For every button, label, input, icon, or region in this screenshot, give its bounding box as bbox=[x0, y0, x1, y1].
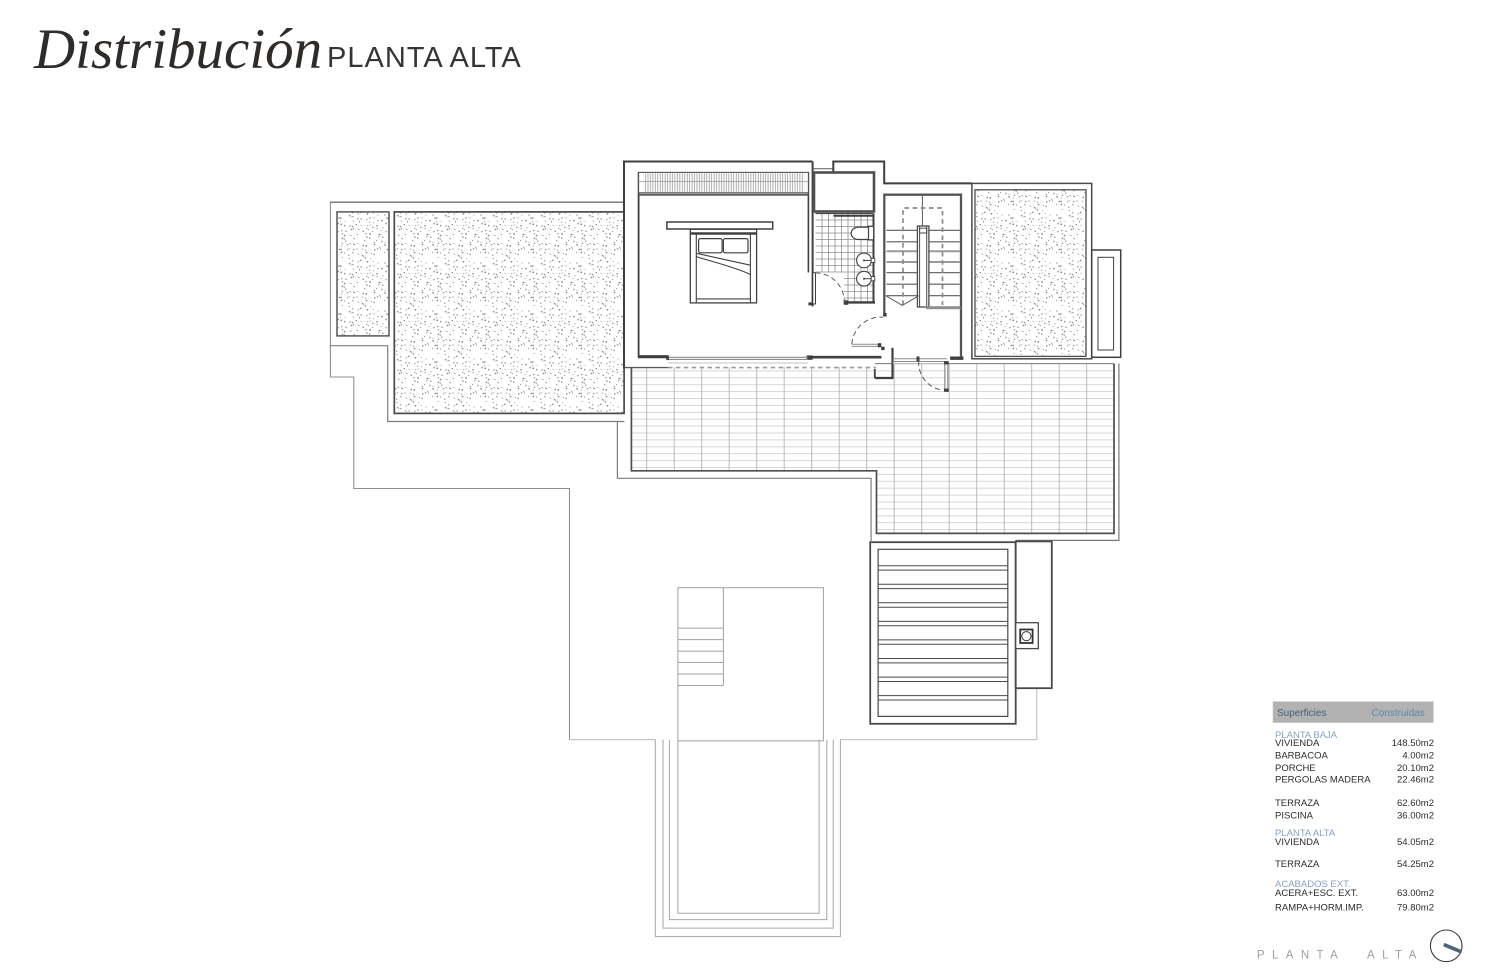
svg-text:TERRAZA: TERRAZA bbox=[1275, 859, 1320, 870]
svg-text:20.10m2: 20.10m2 bbox=[1397, 763, 1434, 774]
svg-text:VIVIENDA: VIVIENDA bbox=[1275, 738, 1320, 749]
svg-text:VIVIENDA: VIVIENDA bbox=[1275, 837, 1320, 848]
svg-text:62.60m2: 62.60m2 bbox=[1397, 798, 1434, 809]
svg-text:ALTA: ALTA bbox=[1367, 950, 1424, 962]
svg-text:79.80m2: 79.80m2 bbox=[1397, 902, 1434, 913]
svg-text:22.46m2: 22.46m2 bbox=[1397, 775, 1434, 786]
svg-text:TERRAZA: TERRAZA bbox=[1275, 798, 1320, 809]
svg-text:54.05m2: 54.05m2 bbox=[1397, 837, 1434, 848]
svg-text:Superficies: Superficies bbox=[1277, 708, 1326, 719]
svg-text:BARBACOA: BARBACOA bbox=[1275, 750, 1328, 761]
svg-text:4.00m2: 4.00m2 bbox=[1402, 750, 1434, 761]
svg-text:PORCHE: PORCHE bbox=[1275, 763, 1316, 774]
svg-text:PISCINA: PISCINA bbox=[1275, 810, 1314, 821]
svg-text:36.00m2: 36.00m2 bbox=[1397, 810, 1434, 821]
svg-text:148.50m2: 148.50m2 bbox=[1392, 738, 1434, 749]
svg-text:PLANTA: PLANTA bbox=[1257, 950, 1345, 962]
svg-text:Construidas: Construidas bbox=[1372, 708, 1425, 719]
svg-text:54.25m2: 54.25m2 bbox=[1397, 859, 1434, 870]
svg-text:ACERA+ESC. EXT.: ACERA+ESC. EXT. bbox=[1275, 888, 1358, 899]
svg-text:PERGOLAS MADERA: PERGOLAS MADERA bbox=[1275, 775, 1371, 786]
svg-text:RAMPA+HORM.IMP.: RAMPA+HORM.IMP. bbox=[1275, 902, 1364, 913]
svg-text:Distribución: Distribución bbox=[33, 18, 322, 81]
svg-text:PLANTA ALTA: PLANTA ALTA bbox=[327, 42, 522, 74]
svg-text:63.00m2: 63.00m2 bbox=[1397, 888, 1434, 899]
